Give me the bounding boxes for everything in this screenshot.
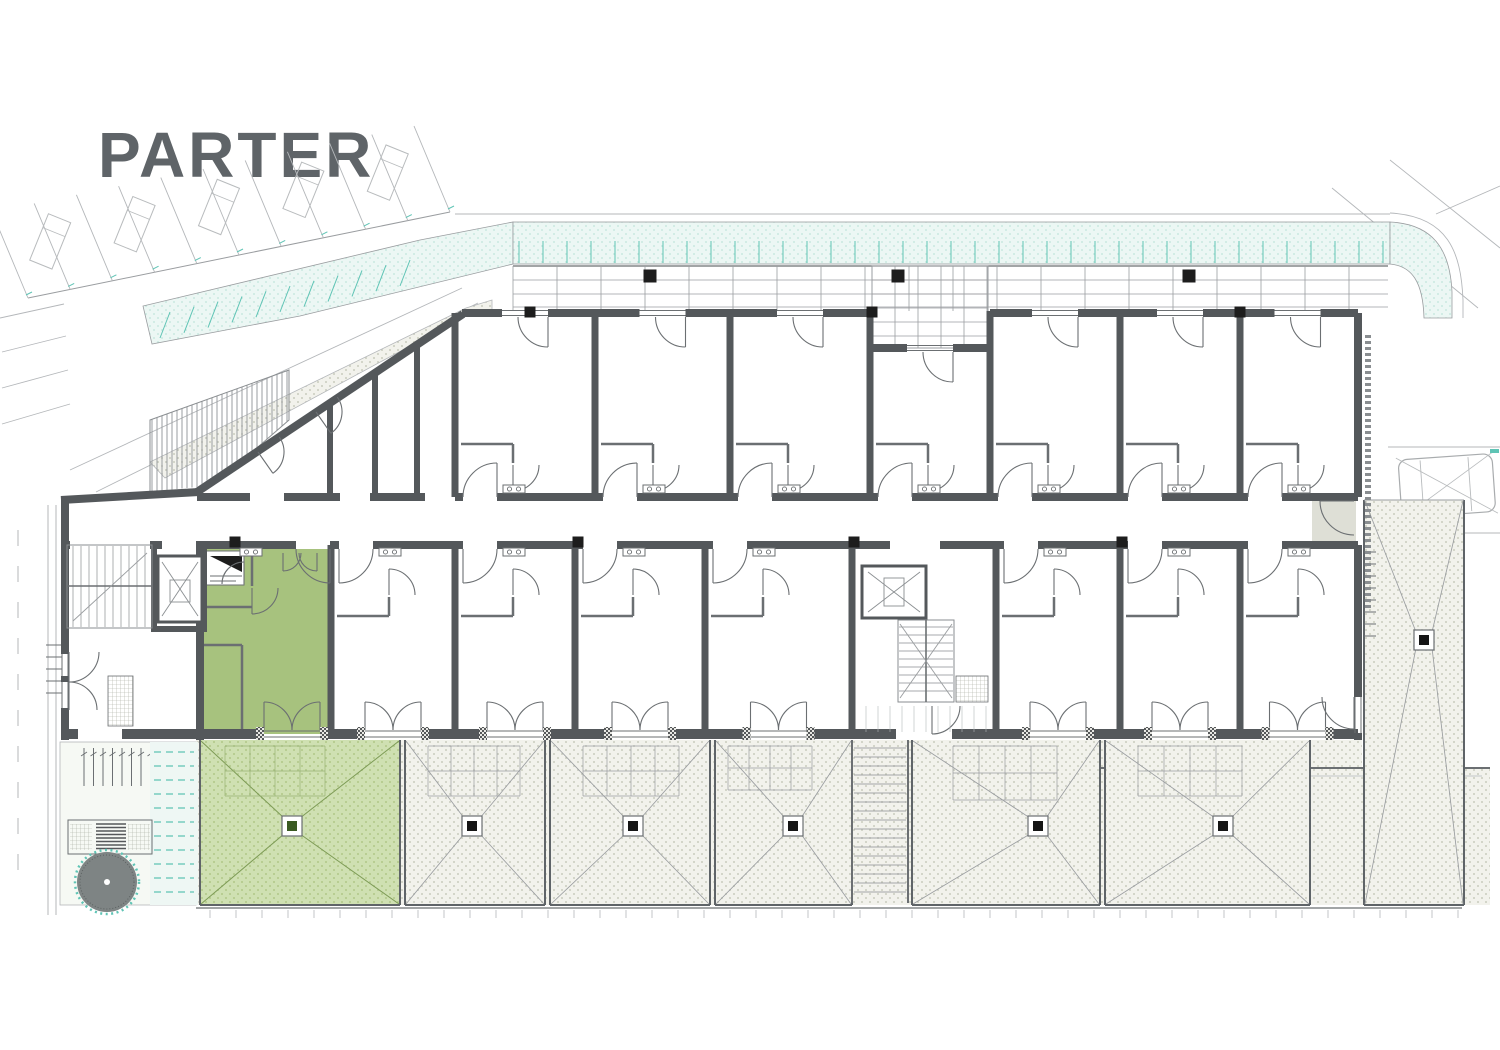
- page: PARTER: [0, 0, 1500, 1050]
- floor-plan: [0, 0, 1500, 1050]
- highlighted-terrace[interactable]: [200, 740, 400, 905]
